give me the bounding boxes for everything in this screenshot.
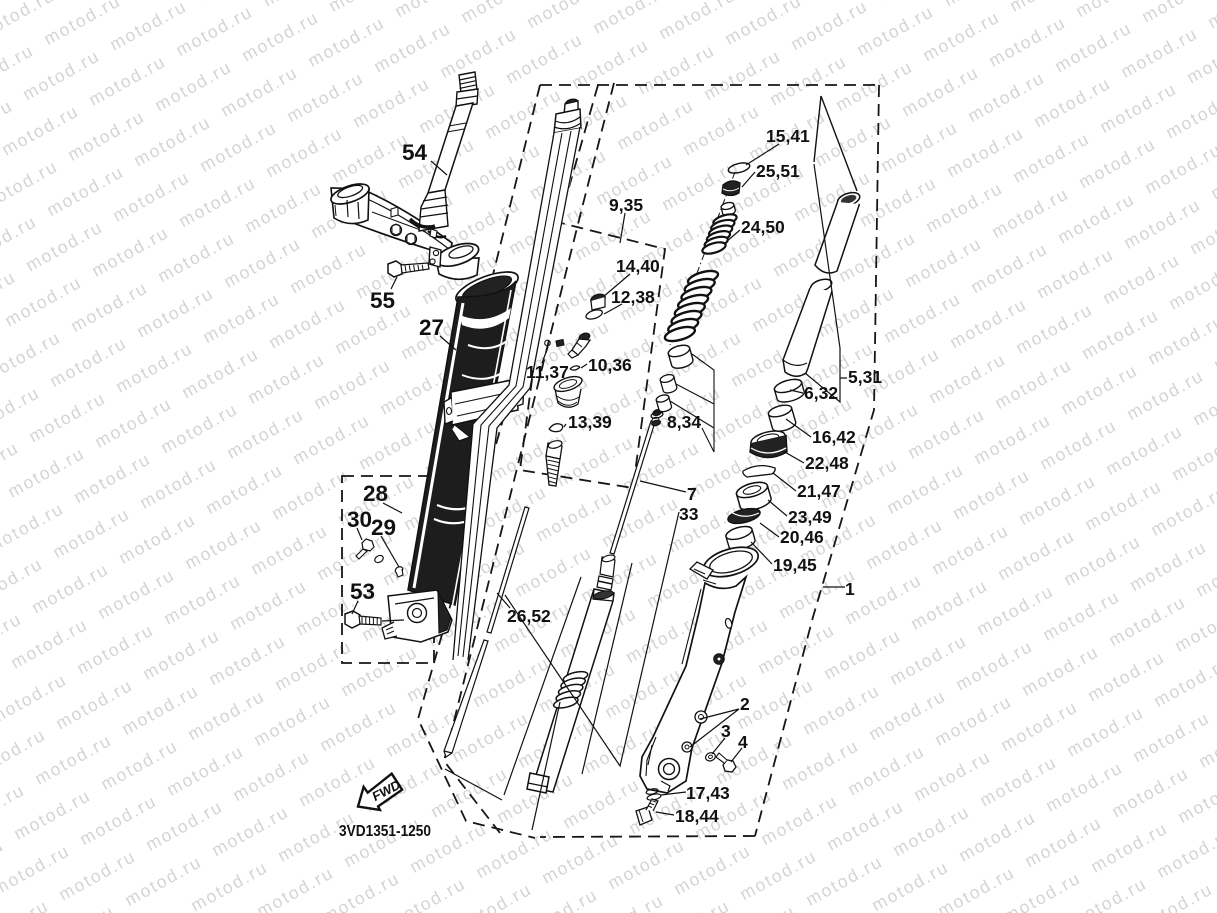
svg-text:12,38: 12,38 bbox=[611, 287, 655, 307]
svg-text:25,51: 25,51 bbox=[756, 161, 800, 181]
svg-text:22,48: 22,48 bbox=[805, 453, 849, 473]
svg-text:27: 27 bbox=[419, 315, 444, 340]
svg-text:21,47: 21,47 bbox=[797, 481, 841, 501]
svg-text:54: 54 bbox=[402, 140, 428, 165]
svg-text:5,31: 5,31 bbox=[848, 367, 882, 387]
svg-text:29: 29 bbox=[371, 515, 396, 540]
svg-text:3: 3 bbox=[721, 721, 731, 741]
svg-text:24,50: 24,50 bbox=[741, 217, 785, 237]
svg-text:16,42: 16,42 bbox=[812, 427, 856, 447]
svg-text:1: 1 bbox=[845, 579, 855, 599]
svg-text:19,45: 19,45 bbox=[773, 555, 817, 575]
svg-text:9,35: 9,35 bbox=[609, 195, 643, 215]
svg-text:3VD1351-1250: 3VD1351-1250 bbox=[339, 823, 431, 840]
svg-text:4: 4 bbox=[738, 732, 748, 752]
svg-text:2: 2 bbox=[740, 694, 750, 714]
svg-text:26,52: 26,52 bbox=[507, 606, 551, 626]
svg-text:6,32: 6,32 bbox=[804, 383, 838, 403]
svg-text:7: 7 bbox=[687, 484, 697, 504]
svg-text:11,37: 11,37 bbox=[526, 362, 569, 382]
svg-text:20,46: 20,46 bbox=[780, 527, 824, 547]
svg-text:55: 55 bbox=[370, 288, 395, 313]
svg-text:23,49: 23,49 bbox=[788, 507, 832, 527]
svg-text:28: 28 bbox=[363, 481, 388, 506]
svg-text:10,36: 10,36 bbox=[588, 355, 632, 375]
svg-text:53: 53 bbox=[350, 579, 375, 604]
svg-text:15,41: 15,41 bbox=[766, 126, 810, 146]
svg-text:13,39: 13,39 bbox=[568, 412, 612, 432]
svg-text:30: 30 bbox=[347, 507, 372, 532]
svg-text:33: 33 bbox=[679, 504, 699, 524]
svg-text:17,43: 17,43 bbox=[686, 783, 730, 803]
svg-text:8,34: 8,34 bbox=[667, 412, 701, 432]
svg-text:14,40: 14,40 bbox=[616, 256, 660, 276]
svg-text:18,44: 18,44 bbox=[675, 806, 719, 826]
